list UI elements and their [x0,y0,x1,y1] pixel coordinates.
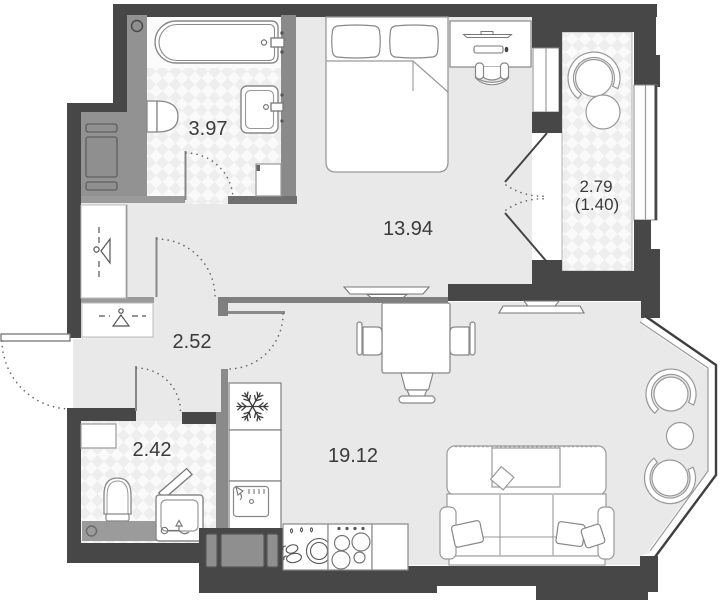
svg-text:2.42: 2.42 [133,439,172,461]
svg-text:2.52: 2.52 [173,331,212,353]
svg-text:(1.40): (1.40) [575,195,619,214]
svg-text:13.94: 13.94 [383,218,433,240]
svg-text:3.97: 3.97 [189,118,228,140]
svg-text:19.12: 19.12 [328,445,378,467]
svg-text:2.79: 2.79 [579,177,612,196]
